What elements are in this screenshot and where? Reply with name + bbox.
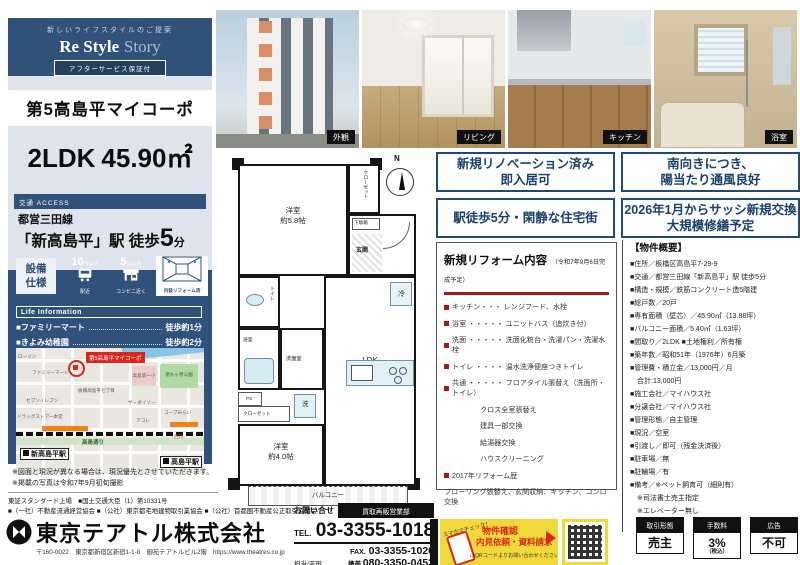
outline-item: ■構造・規模／鉄筋コンクリート造5階建 [630,284,798,297]
promo-line2: 内見依頼・資料請求 [476,536,553,548]
photo-label: キッチン [603,130,647,144]
term-fee: 手数料 3%（税込） [693,517,741,559]
bedroom-4_0: 洋室 約4.0帖 [238,424,324,486]
equip-tile-station: 10分以内 駅近 [64,256,106,296]
pipe-space: PS [238,392,262,406]
ceiling-light [402,17,431,32]
outline-item: ■交通／都営三田線「新高島平」駅 徒歩5分 [630,271,798,284]
reform-details: 新規リフォーム内容 （令和7年9月6日完成予定） キッチン・・・ レンジフード、… [436,242,617,490]
station-east-label: 高島平駅 [160,456,202,468]
equipment-title: 設備 仕様 [16,258,56,294]
station-west-label: 新高島平駅 [20,448,69,460]
range-hood [517,10,571,51]
exit-label: 西口 [174,434,183,440]
company-address: 〒160-0022 東京都新宿区新宿1-1-8 御苑テアトルビル2階 https… [36,547,285,556]
inquiry-label: お問い合せ [294,505,334,516]
compass-north-label: N [394,154,400,163]
outline-title: 【物件概要】 [630,240,798,254]
property-size: 2LDK45.90㎡ [8,138,212,175]
exterior-photo: 外観 [216,10,359,148]
outline-item: 合計:13,000円 [630,375,798,388]
contact-block: お問い合せ 買取再販営業部 TEL. 03-3355-1018 FAX. 03-… [294,503,434,565]
bath-room: 浴室 [238,328,280,390]
station-access: 「新高島平」駅 徒歩5分 [16,224,206,253]
outline-item: ■総戸数／20戸 [630,297,798,310]
photo-label: リビング [457,130,501,144]
equip-tile-store: 5分以内 コンビニ近く [110,256,152,296]
outline-item: ■バルコニー面積／5.40㎡（1.63坪） [630,323,798,336]
brand-header: 新しいライフスタイルのご提案 Re Style Story アフターサービス保証… [8,18,212,76]
term-advertising: 広告 不可 [750,517,798,559]
outline-item: ■管理費・積立金／13,000円／月 [630,362,798,375]
outline-item: ■駐輪場／有 [630,466,798,479]
left-panel: 新しいライフスタイルのご提案 Re Style Story アフターサービス保証… [8,18,212,464]
outline-item: ■駐車場／無 [630,453,798,466]
bathtub-fixture [244,358,274,384]
company-logo-row: 東京テアトル株式会社 [6,516,266,548]
divider-bar [430,519,438,565]
feature-box: 南向きにつき、陽当たり通風良好 [621,152,800,192]
kitchen-photo: キッチン [508,10,651,148]
outline-item: ■専有面積（壁芯）／45.90㎡（13.88坪） [630,310,798,323]
outline-item: ■築年数／昭和51年（1976年）6月築 [630,349,798,362]
sink [351,365,373,381]
station-icon [163,458,169,464]
outline-item: ■間取り／2LDK ■土地権利／所有権 [630,336,798,349]
laundry-space: 洗 [294,394,316,418]
brand-logo: Re Style Story [8,37,212,57]
reform-item: 浴室 ・・・・・ ユニットバス（追炊き付） [444,319,609,329]
fax-number: FAX. 03-3355-1020 [294,545,434,557]
outline-item: ■現況／空室 [630,427,798,440]
road-orange [42,426,88,431]
red-rule [444,292,609,295]
red-square-bullet [444,364,449,369]
property-marker-label: 第5高島平マイコーポ [86,352,145,363]
life-item: ■ファミリーマート徒歩約1分 [16,322,202,333]
company-name: 東京テアトル株式会社 [36,516,266,548]
photo-label: 外観 [327,130,355,144]
disclaimer-notes: ※図面と現況が異なる場合は、現況優先とさせていただきます。 ※掲載の写真は令和7… [12,468,213,490]
road-orange [170,422,198,427]
life-info-title: Life Information [16,306,202,318]
theatres-logo-icon [6,519,32,545]
outline-item: ※司法書士売主指定 [630,492,798,505]
entrance-block: 下駄箱 玄関 [348,214,416,276]
school-area: 高島第一小 [132,366,156,386]
powder-room: 洗面室 [280,328,324,390]
layout-type: 2LDK [28,143,96,173]
bedroom-5_8: 洋室 約5.8帖 [238,164,348,276]
reform-title: 新規リフォーム内容 [444,255,547,267]
store-icon [122,268,140,282]
reform-item: 建具一部交換 [444,421,609,431]
property-head-section: 第5高島平マイコーポ 2LDK45.90㎡ 交通 ACCESS 都営三田線 「新… [8,76,212,270]
red-square-bullet [444,343,449,348]
property-outline: 【物件概要】 ■住所／板橋区高島平7-29-9 ■交通／都営三田線「新高島平」駅… [622,240,798,532]
red-square-bullet [444,321,449,326]
outline-item: ■施工会社／マイハウス社 [630,388,798,401]
qr-promo-box: スマホでチェック！ 物件確認 内見依頼・資料請求 はQRコードよりお問い合わせく… [440,519,558,565]
reform-item: クロス全室張替え [444,405,609,415]
park-area: 徳丸ヶ原公園 [160,364,198,388]
reform-item: 給湯器交換 [444,438,609,448]
floor-area: 45.90㎡ [101,143,192,173]
feature-box: 駅徒歩5分・閑静な住宅街 [436,198,615,238]
shower-bar [746,40,748,106]
mirror [773,27,792,85]
outline-item: ■引渡し／即可（残金決済後） [630,440,798,453]
bathtub [660,102,745,148]
toilet-fixture [246,294,264,306]
photo-label: 浴室 [765,130,793,144]
feature-boxes: 新規リノベーション済み即入居可 南向きにつき、陽当たり通風良好 駅徒歩5分・閑静… [436,152,800,238]
reform-item: フローリング張替え、玄関収納、キッチン、コンロ交換 [444,487,609,507]
feature-box: 2026年1月からサッシ新規交換大規模修繕予定 [621,198,800,238]
staff-name: 担当/吉田 [294,558,322,565]
arrow-icon [546,531,556,545]
reform-item: キッチン・・・ レンジフード、水栓 [444,302,609,312]
closet-1: クローゼット [348,164,380,214]
train-icon [76,268,94,282]
transaction-terms: 取引形態 売主 手数料 3%（税込） 広告 不可 [636,517,798,559]
outline-item: ■住所／板橋区高島平7-29-9 [630,258,798,271]
bathroom-photo: 浴室 [654,10,797,148]
window [694,24,748,76]
window [422,35,494,117]
feature-box: 新規リノベーション済み即入居可 [436,152,615,192]
mobile-number: 携帯.080-3350-0453 [348,557,434,565]
compass-icon [386,168,414,196]
after-service-badge: アフターサービス保証付 [54,60,166,76]
fridge-space: 冷 [390,282,412,306]
qr-code [562,519,608,565]
smartphone-icon [446,530,477,565]
living-photo: リビング [362,10,505,148]
red-square-bullet [444,386,449,391]
red-square-bullet [444,305,449,310]
access-header: 交通 ACCESS [14,194,206,209]
outline-item: ■分譲会社／マイハウス社 [630,401,798,414]
flyer-canvas: 新しいライフスタイルのご提案 Re Style Story アフターサービス保証… [0,0,800,565]
reform-item: ハウスクリーニング [444,454,609,464]
kitchen-counter [346,360,414,386]
reform-item: 共通 ・・・・・ フロアタイル張替え（洗面所・トイレ） [444,378,609,398]
station-icon [23,450,29,456]
property-name: 第5高島平マイコーポ [8,90,212,126]
door-arc [383,222,410,249]
life-information: Life Information ■ファミリーマート徒歩約1分 ■きよみ幼稚園徒… [16,306,202,348]
reform-item: 2017年リフォーム歴 [444,471,609,481]
road-name: 高島通り [82,438,104,446]
area-map: 徳丸ヶ原公園 高島第一小 高島通り 第5高島平マイコーポ 新高島平駅 高島平駅 … [16,348,204,474]
outline-item: ■管理形態／自主管理 [630,414,798,427]
floor-plan: N 洋室 約5.8帖 クローゼット 下駄箱 玄関 トイレ 浴室 [218,152,432,508]
equip-tile-reform: 内装リフォーム済 [156,256,208,296]
department-badge: 買取再販営業部 [338,503,434,518]
interior-reform-icon [162,256,202,282]
brand-tagline: 新しいライフスタイルのご提案 [8,25,212,35]
reform-item: 洗面 ・・・・・ 洗面化粧台・洗濯パン・洗濯水栓 [444,335,609,355]
toilet-room: トイレ [238,276,280,328]
red-square-bullet [444,473,449,478]
closet-2: クローゼット [238,406,290,422]
outline-item: ■備考／※ペット飼育可（細則有） [630,479,798,492]
life-item: ■きよみ幼稚園徒歩約2分 [16,337,202,348]
promo-note: はQRコードよりお問い合わせください。 [470,552,558,559]
reform-item: トイレ ・・・・ 温水洗浄便座つきトイレ [444,362,609,372]
term-deal-type: 取引形態 売主 [636,517,684,559]
phone-number: TEL. 03-3355-1018 [294,520,434,544]
